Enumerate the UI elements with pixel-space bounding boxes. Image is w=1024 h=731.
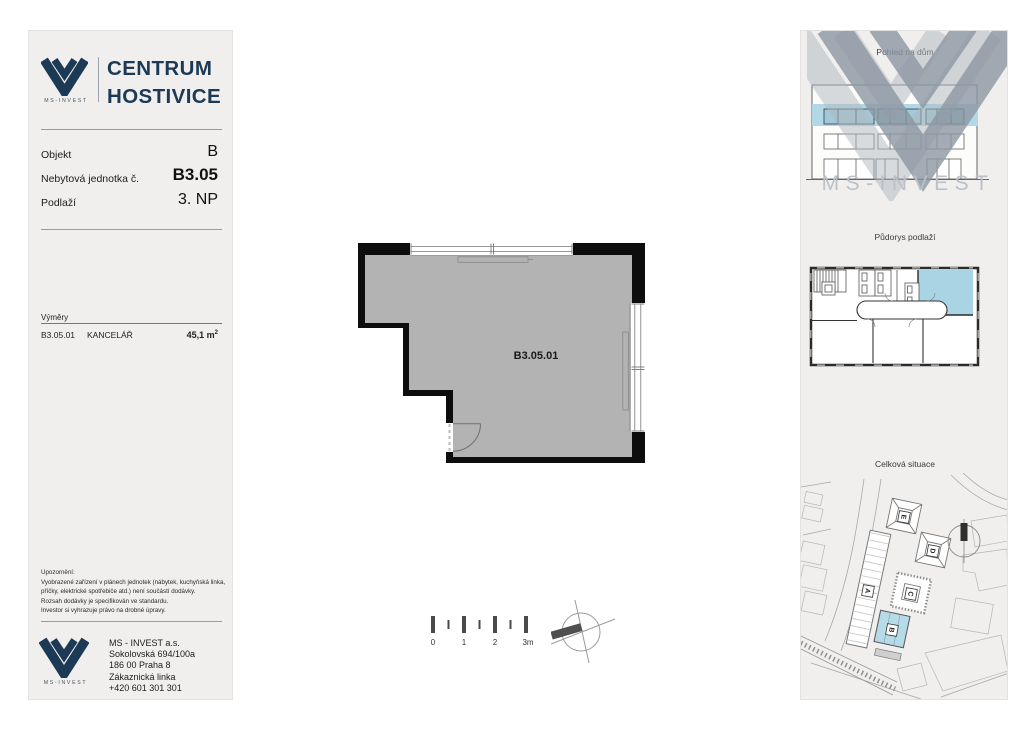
areas-underline [41, 323, 222, 324]
company-address: MS - INVEST a.s. Sokolovská 694/100a 186… [109, 638, 195, 694]
window-right [630, 303, 645, 432]
notice-line: příčky, elektrické spotřebiče atd.) není… [41, 587, 225, 597]
room-code: B3.05.01 [41, 330, 87, 340]
room-area-sup: 2 [215, 330, 218, 336]
windows-floor3 [824, 109, 964, 124]
notice-line: Vyobrazené zařízení v plánech jednotek (… [41, 578, 225, 588]
building-elevation [801, 76, 1008, 221]
site-building-c: C [891, 573, 931, 613]
site-building-e: E [886, 498, 922, 534]
windows-floor2 [824, 134, 964, 149]
phone-label: Zákaznická linka [109, 672, 195, 683]
footer-logo-caption: MS-INVEST [38, 680, 93, 686]
site-plan: A E D [801, 473, 1008, 699]
company-name: MS - INVEST a.s. [109, 638, 195, 649]
company-city: 186 00 Praha 8 [109, 660, 195, 671]
ms-invest-logo [41, 56, 88, 96]
unit-floorplan: B3.05.01 [337, 228, 657, 478]
section-title-floor: Půdorys podlaží [801, 232, 1008, 242]
logo-caption: MS-INVEST [40, 98, 92, 104]
window-top [410, 243, 573, 256]
notice-line: Investor si vyhrazuje právo na drobné úp… [41, 606, 225, 616]
info-row-objekt: Objekt B [41, 139, 218, 161]
info-label: Nebytová jednotka č. [41, 173, 139, 185]
phone-number: +420 601 301 301 [109, 683, 195, 694]
info-label: Podlaží [41, 197, 76, 209]
windows-ground [824, 159, 961, 179]
info-value: 3. NP [178, 191, 218, 209]
areas-title: Výměry [41, 313, 68, 322]
room-area: 45,1 m2 [187, 330, 218, 340]
scale-label-0: 0 [431, 638, 436, 647]
site-compass [948, 519, 980, 563]
room-name: KANCELÁŘ [87, 330, 187, 340]
storey-plan [801, 257, 1008, 372]
info-row-jednotka: Nebytová jednotka č. B3.05 [41, 163, 218, 185]
scale-bar: 0 1 2 3m [426, 612, 538, 652]
info-row-podlazi: Podlaží 3. NP [41, 187, 218, 209]
info-label: Objekt [41, 149, 71, 161]
overview-panel: Pohled na dům [800, 30, 1008, 700]
info-value: B [207, 143, 218, 161]
section-title-view: Pohled na dům [801, 47, 1008, 57]
project-title: CENTRUM HOSTIVICE [107, 55, 221, 111]
info-panel: MS-INVEST CENTRUM HOSTIVICE Objekt B Neb… [28, 30, 233, 700]
project-title-line2: HOSTIVICE [107, 83, 221, 111]
scale-labels: 0 1 2 3m [431, 638, 534, 647]
divider-rule [41, 129, 222, 130]
north-needle [551, 623, 582, 639]
room-area-unit: m [207, 330, 215, 340]
company-street: Sokolovská 694/100a [109, 649, 195, 660]
areas-row: B3.05.01 KANCELÁŘ 45,1 m2 [41, 330, 218, 340]
section-title-site: Celková situace [801, 459, 1008, 469]
room-area-value: 45,1 [187, 330, 205, 340]
divider-rule [41, 621, 222, 622]
notice-line: Rozsah dodávky je specifikován ve standa… [41, 597, 225, 607]
divider-rule [41, 229, 222, 230]
scale-label-3: 3m [522, 638, 533, 647]
info-value: B3.05 [173, 165, 218, 185]
project-title-line1: CENTRUM [107, 55, 221, 83]
site-building-b: B [874, 610, 910, 660]
logo-divider [98, 57, 99, 102]
north-compass [551, 596, 623, 668]
unit-number-label: B3.05.01 [514, 350, 559, 362]
scale-ticks [431, 616, 528, 633]
notice-block: Upozornění: Vyobrazené zařízení v plánec… [41, 568, 225, 616]
corridor [857, 301, 947, 319]
scale-label-2: 2 [493, 638, 498, 647]
scale-label-1: 1 [462, 638, 467, 647]
site-building-d: D [915, 532, 951, 568]
ms-invest-logo-footer [39, 636, 89, 678]
notice-line: Upozornění: [41, 568, 225, 578]
floorplan-sheet: { "brand": { "name_line1": "CENTRUM", "n… [0, 0, 1024, 731]
